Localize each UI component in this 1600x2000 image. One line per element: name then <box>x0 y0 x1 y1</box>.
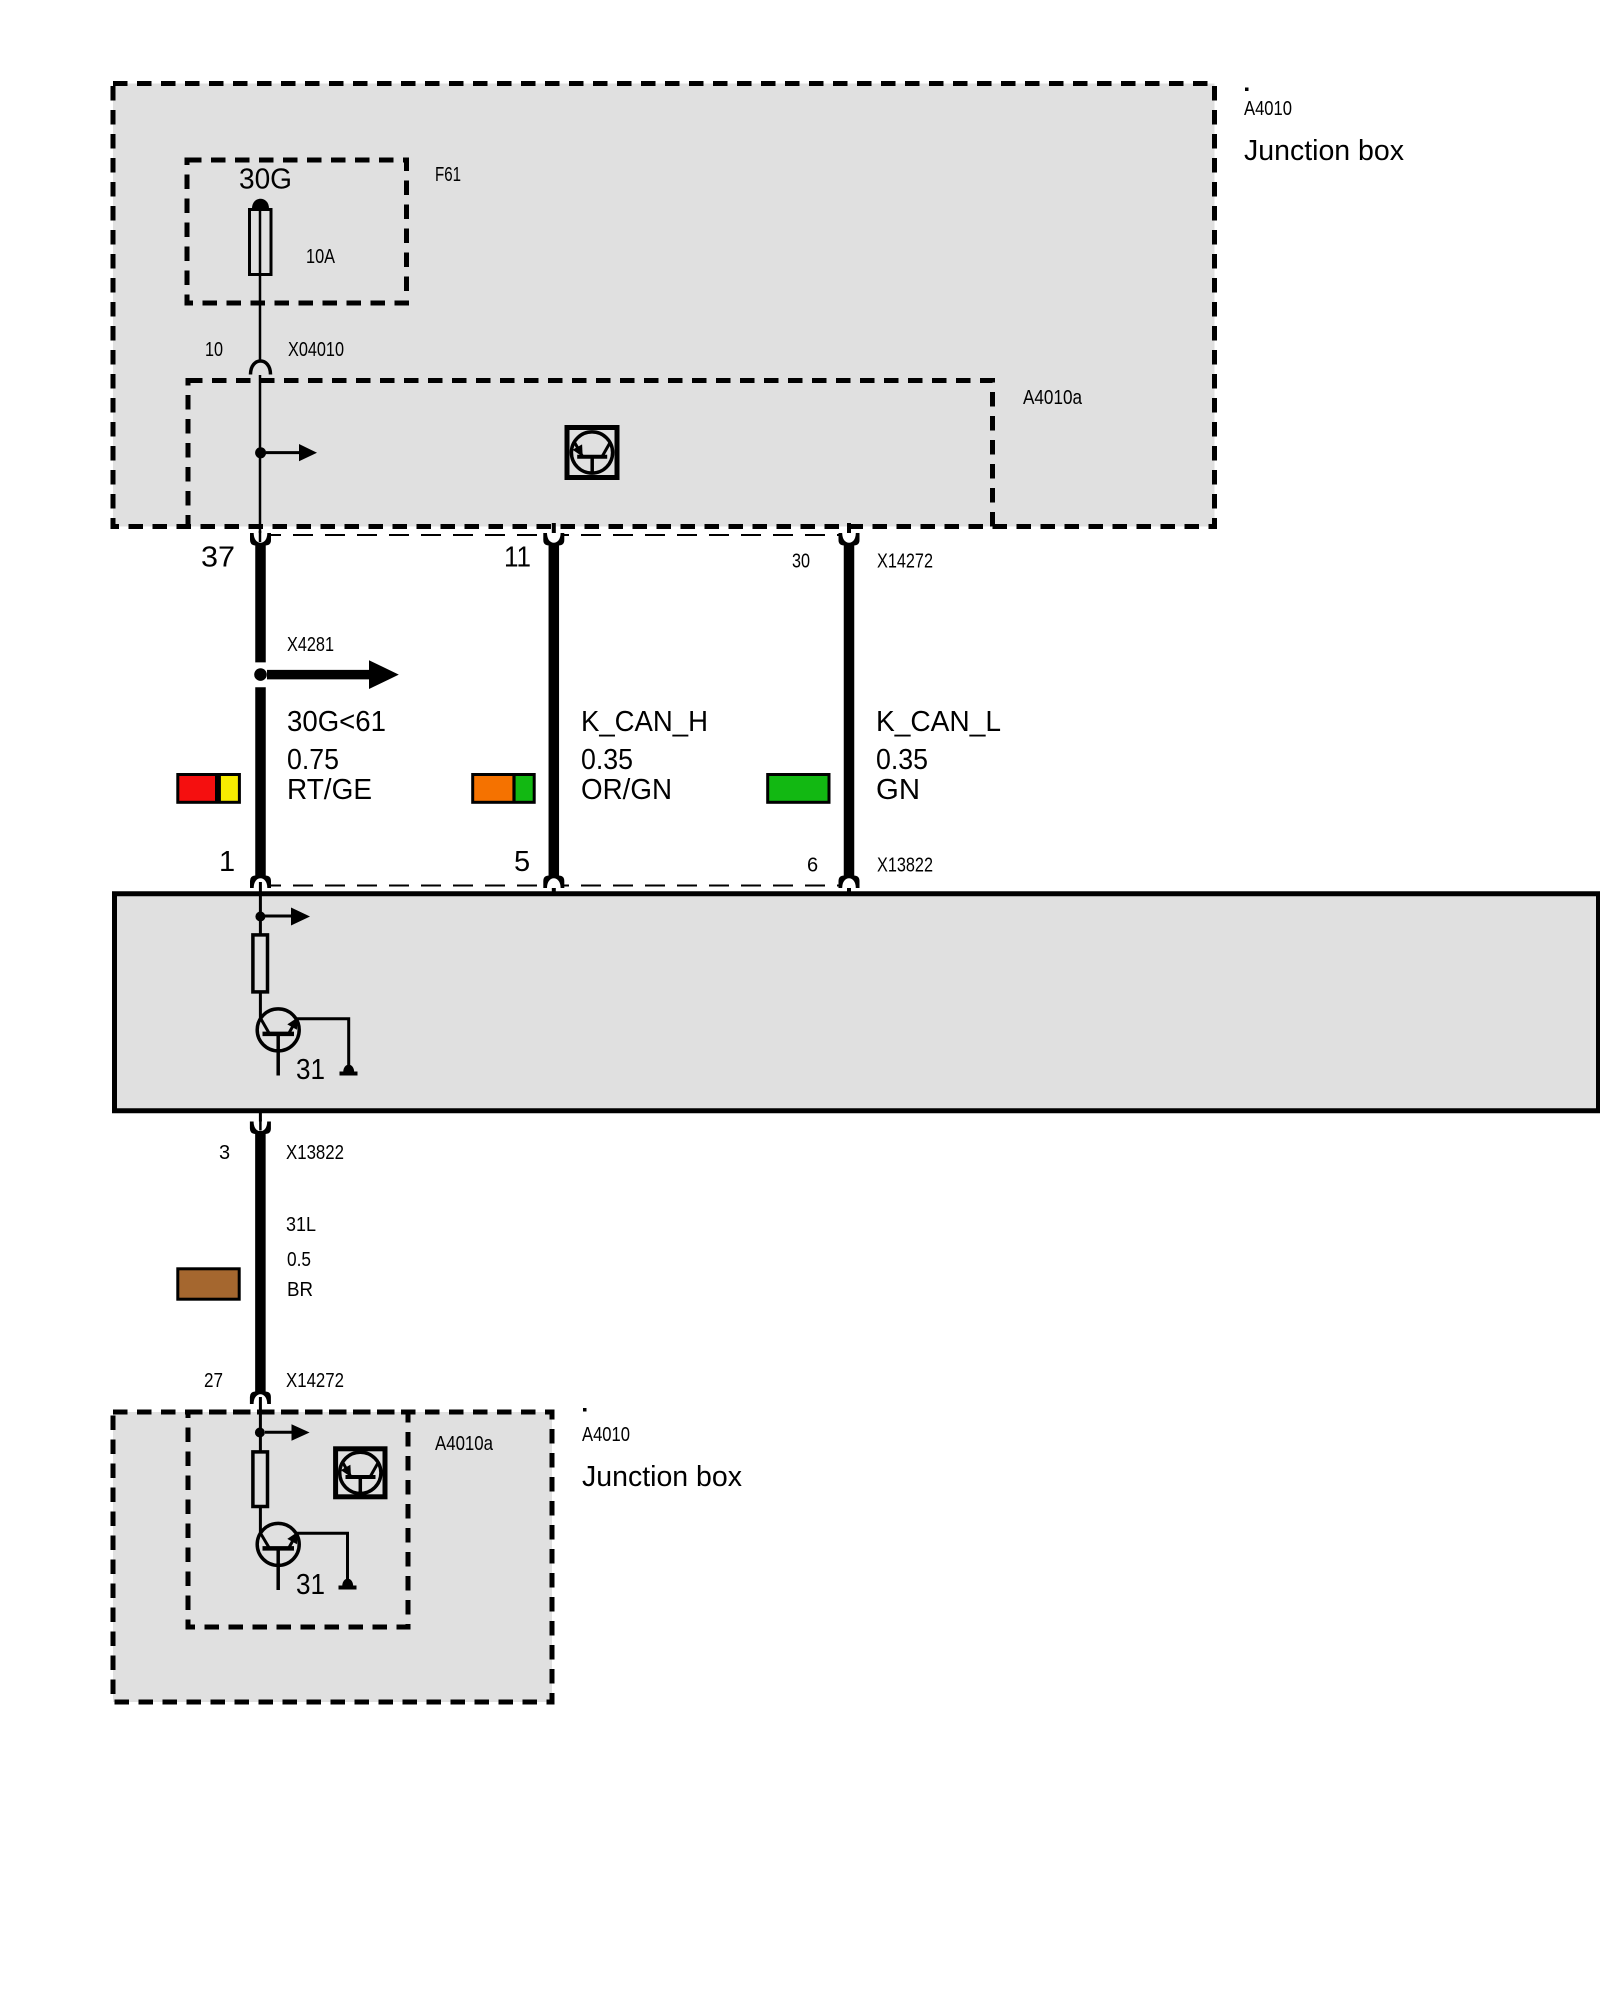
svg-text:X14272: X14272 <box>286 1370 344 1392</box>
svg-text:10A: 10A <box>306 246 336 268</box>
svg-text:30G<61: 30G<61 <box>287 706 386 738</box>
svg-text:6: 6 <box>807 855 818 877</box>
svg-text:3: 3 <box>219 1142 230 1164</box>
svg-text:A4010a: A4010a <box>1023 387 1083 409</box>
svg-text:K_CAN_L: K_CAN_L <box>876 706 1001 738</box>
svg-text:1: 1 <box>219 846 235 878</box>
svg-text:31: 31 <box>296 1054 325 1086</box>
svg-text:5: 5 <box>514 846 530 878</box>
svg-text:A4010a: A4010a <box>435 1433 494 1455</box>
svg-text:X04010: X04010 <box>288 339 344 361</box>
svg-text:X13822: X13822 <box>877 855 933 877</box>
svg-text:0.35: 0.35 <box>876 744 928 776</box>
svg-text:BR: BR <box>287 1279 313 1301</box>
svg-text:10: 10 <box>205 339 223 361</box>
svg-text:X4281: X4281 <box>287 634 334 656</box>
svg-text:37: 37 <box>201 542 235 574</box>
svg-text:30: 30 <box>792 551 810 573</box>
svg-text:RT/GE: RT/GE <box>287 774 372 806</box>
svg-text:0.5: 0.5 <box>287 1249 311 1271</box>
svg-text:A4010: A4010 <box>1244 98 1292 120</box>
svg-text:11: 11 <box>504 542 531 574</box>
svg-text:OR/GN: OR/GN <box>581 774 672 806</box>
svg-text:0.75: 0.75 <box>287 744 339 776</box>
svg-text:0.35: 0.35 <box>581 744 633 776</box>
svg-text:GN: GN <box>876 774 920 806</box>
svg-text:27: 27 <box>204 1370 223 1392</box>
svg-text:Junction box: Junction box <box>1244 135 1404 167</box>
svg-text:A4010: A4010 <box>582 1424 630 1446</box>
svg-text:X14272: X14272 <box>877 551 933 573</box>
svg-text:31L: 31L <box>286 1214 316 1236</box>
svg-text:31: 31 <box>296 1569 325 1601</box>
svg-text:K_CAN_H: K_CAN_H <box>581 706 708 738</box>
svg-text:30G: 30G <box>239 164 292 196</box>
svg-text:Junction box: Junction box <box>582 1461 742 1493</box>
svg-text:F61: F61 <box>435 164 461 186</box>
svg-text:X13822: X13822 <box>286 1142 344 1164</box>
